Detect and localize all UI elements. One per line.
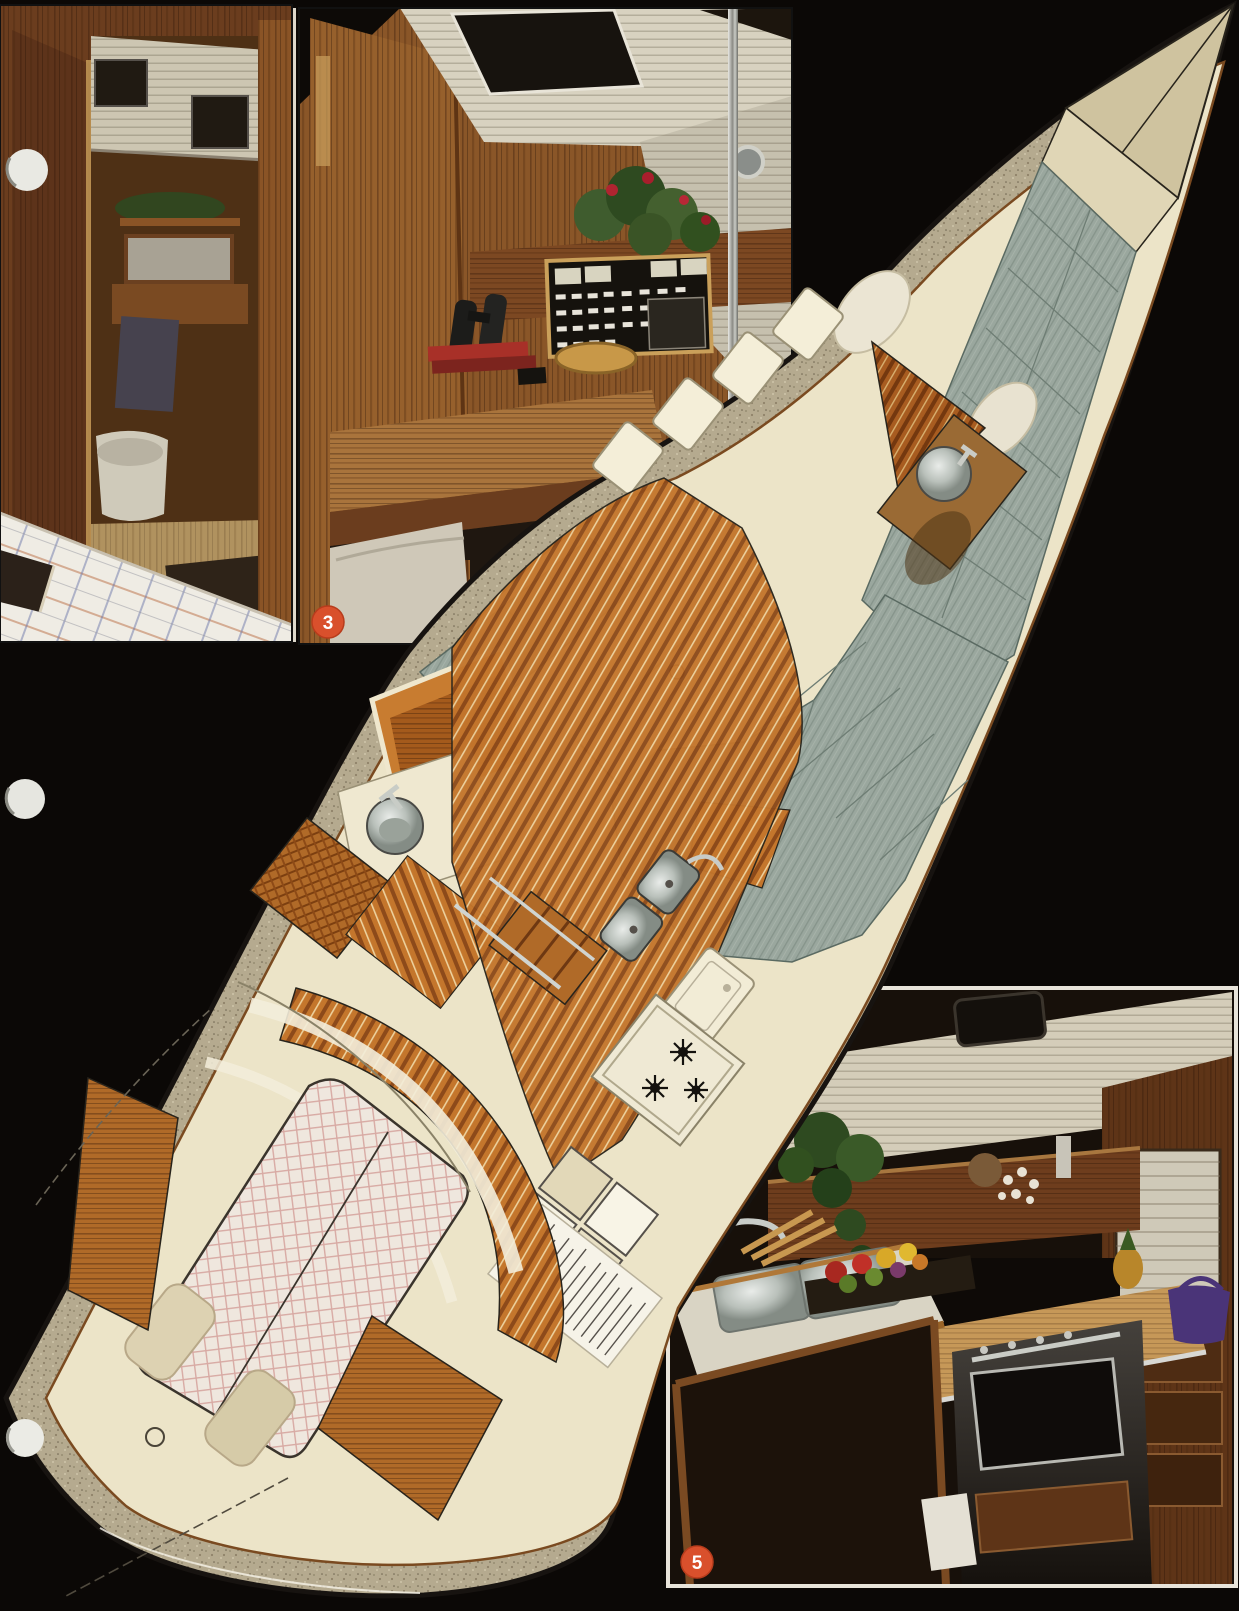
electrical-panel bbox=[546, 255, 711, 357]
overhead-hatch bbox=[95, 60, 147, 106]
photo-head-cabin bbox=[0, 5, 292, 642]
badge-5-label: 5 bbox=[692, 1553, 703, 1574]
bottle bbox=[1056, 1136, 1071, 1178]
coconut bbox=[968, 1153, 1002, 1187]
overhead-hatch bbox=[192, 96, 248, 148]
camera bbox=[517, 367, 546, 385]
brochure-page: 3 5 bbox=[0, 0, 1239, 1611]
mirror bbox=[126, 236, 232, 282]
oven-stove bbox=[952, 1320, 1152, 1586]
figure-badge-5: 5 bbox=[681, 1546, 713, 1578]
page-canvas: 3 5 bbox=[0, 0, 1239, 1611]
deck-fitting bbox=[146, 1428, 164, 1446]
basket bbox=[556, 343, 636, 373]
badge-3-label: 3 bbox=[323, 613, 334, 634]
vent-hatch bbox=[954, 992, 1046, 1047]
page-gap-sliver bbox=[293, 8, 296, 642]
purple-basket bbox=[1168, 1285, 1230, 1344]
figure-badge-3: 3 bbox=[312, 606, 344, 638]
vanity-sink bbox=[917, 447, 971, 501]
towel bbox=[115, 316, 179, 412]
